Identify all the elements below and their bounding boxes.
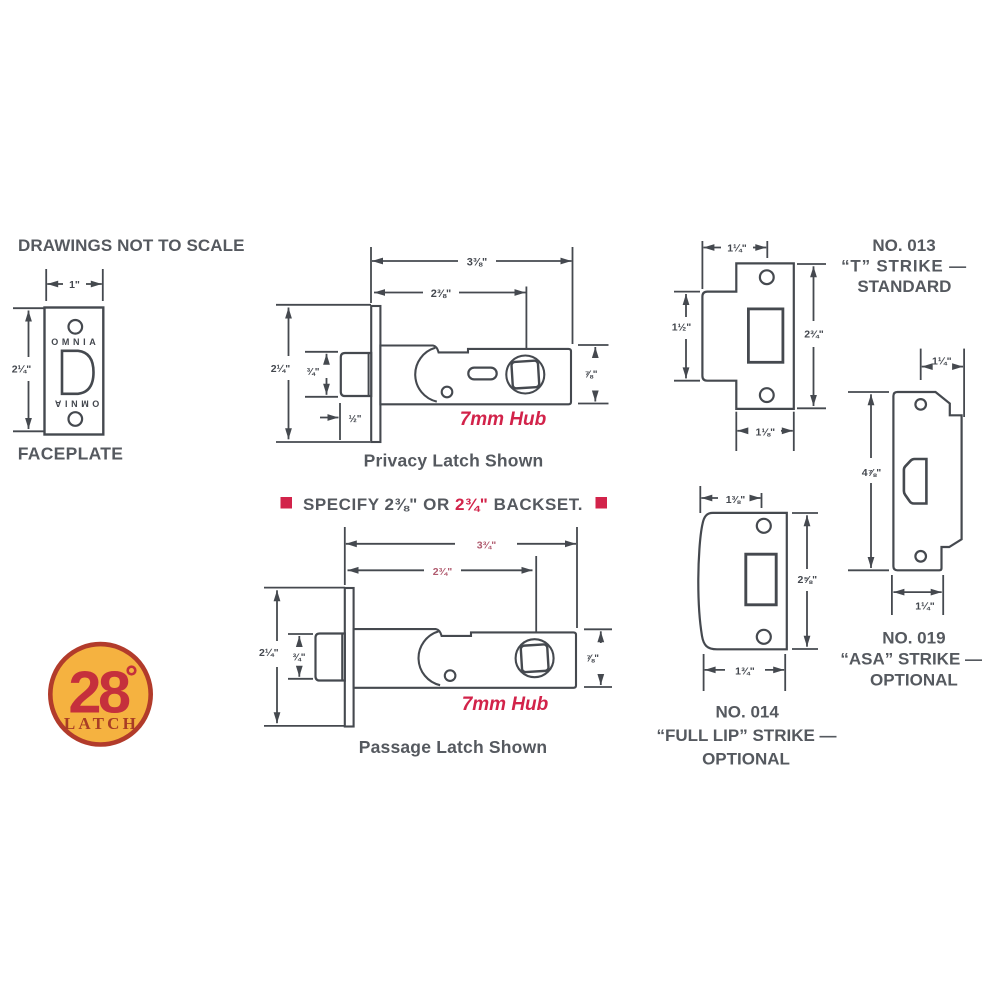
- svg-text:“ASA” STRIKE —: “ASA” STRIKE —: [840, 649, 982, 668]
- svg-text:2¾": 2¾": [433, 566, 453, 578]
- svg-text:1¼": 1¼": [915, 601, 935, 613]
- svg-text:Passage Latch Shown: Passage Latch Shown: [359, 737, 548, 757]
- svg-text:DRAWINGS NOT TO SCALE: DRAWINGS NOT TO SCALE: [18, 236, 245, 255]
- svg-text:⅞": ⅞": [584, 370, 597, 381]
- svg-text:2⅜": 2⅜": [431, 288, 452, 300]
- svg-text:2¼": 2¼": [12, 364, 32, 376]
- svg-text:OPTIONAL: OPTIONAL: [702, 749, 790, 768]
- svg-text:FACEPLATE: FACEPLATE: [18, 444, 123, 464]
- svg-text:3¾": 3¾": [477, 539, 497, 551]
- svg-text:¾": ¾": [306, 367, 319, 378]
- svg-text:2¾": 2¾": [804, 329, 824, 341]
- svg-text:NO. 013: NO. 013: [872, 236, 935, 255]
- svg-text:Privacy Latch Shown: Privacy Latch Shown: [364, 451, 544, 471]
- svg-text:3⅜": 3⅜": [467, 257, 488, 269]
- svg-text:“FULL LIP” STRIKE —: “FULL LIP” STRIKE —: [656, 726, 836, 745]
- svg-text:SPECIFY 2⅜" OR 2¾" BACKSET.: SPECIFY 2⅜" OR 2¾" BACKSET.: [303, 495, 583, 514]
- svg-text:1⅛": 1⅛": [756, 426, 776, 438]
- svg-text:2¼": 2¼": [259, 647, 279, 659]
- svg-text:NO. 014: NO. 014: [716, 703, 780, 722]
- svg-text:2¼": 2¼": [271, 363, 291, 375]
- svg-text:STANDARD: STANDARD: [857, 277, 951, 296]
- svg-text:OMNIA: OMNIA: [51, 399, 99, 409]
- svg-text:1¾": 1¾": [735, 665, 755, 677]
- svg-text:7mm Hub: 7mm Hub: [460, 409, 547, 430]
- svg-text:4⅞": 4⅞": [862, 467, 882, 479]
- svg-text:¾": ¾": [292, 653, 305, 664]
- svg-text:OPTIONAL: OPTIONAL: [870, 670, 958, 689]
- svg-text:1¼": 1¼": [727, 243, 747, 255]
- svg-text:“T” STRIKE —: “T” STRIKE —: [841, 256, 967, 275]
- svg-text:1⅜": 1⅜": [726, 494, 746, 506]
- svg-text:1½": 1½": [672, 322, 692, 334]
- svg-text:1": 1": [69, 279, 80, 291]
- svg-text:2⅝": 2⅝": [798, 574, 818, 586]
- svg-text:NO. 019: NO. 019: [882, 629, 945, 648]
- svg-text:½": ½": [348, 414, 361, 425]
- svg-text:OMNIA: OMNIA: [51, 337, 99, 347]
- svg-text:1¼": 1¼": [932, 356, 952, 368]
- svg-text:⅞": ⅞": [586, 654, 599, 665]
- svg-text:LATCH: LATCH: [64, 714, 139, 733]
- svg-text:7mm Hub: 7mm Hub: [462, 694, 549, 715]
